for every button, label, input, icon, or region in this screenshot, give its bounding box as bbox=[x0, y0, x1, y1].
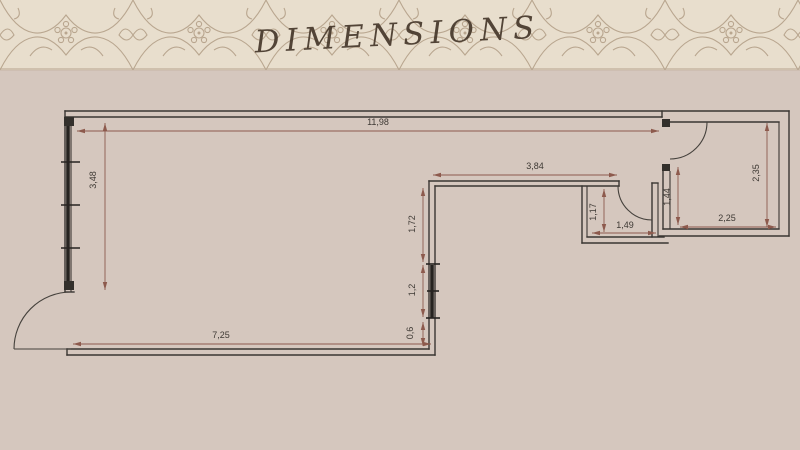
dimension-label: 1,72 bbox=[407, 215, 417, 233]
dimension-label: 3,48 bbox=[88, 171, 98, 189]
dimension-label: 7,25 bbox=[212, 330, 230, 340]
dimension-label: 2,25 bbox=[718, 213, 736, 223]
dimension-label: 3,84 bbox=[526, 161, 544, 171]
screenshot-root: DIMENSIONS bbox=[0, 0, 800, 450]
dimension-label: 0,6 bbox=[405, 327, 415, 340]
dimension-label: 1,49 bbox=[616, 220, 634, 230]
dimension-label: 2,35 bbox=[751, 164, 761, 182]
dimension-label: 1,44 bbox=[662, 188, 672, 206]
dimension-label: 11,98 bbox=[367, 117, 389, 127]
dimension-label: 1,17 bbox=[588, 203, 598, 221]
dimension-label: 1,2 bbox=[407, 284, 417, 297]
floor-plan: DIMENSIONS bbox=[0, 0, 800, 450]
